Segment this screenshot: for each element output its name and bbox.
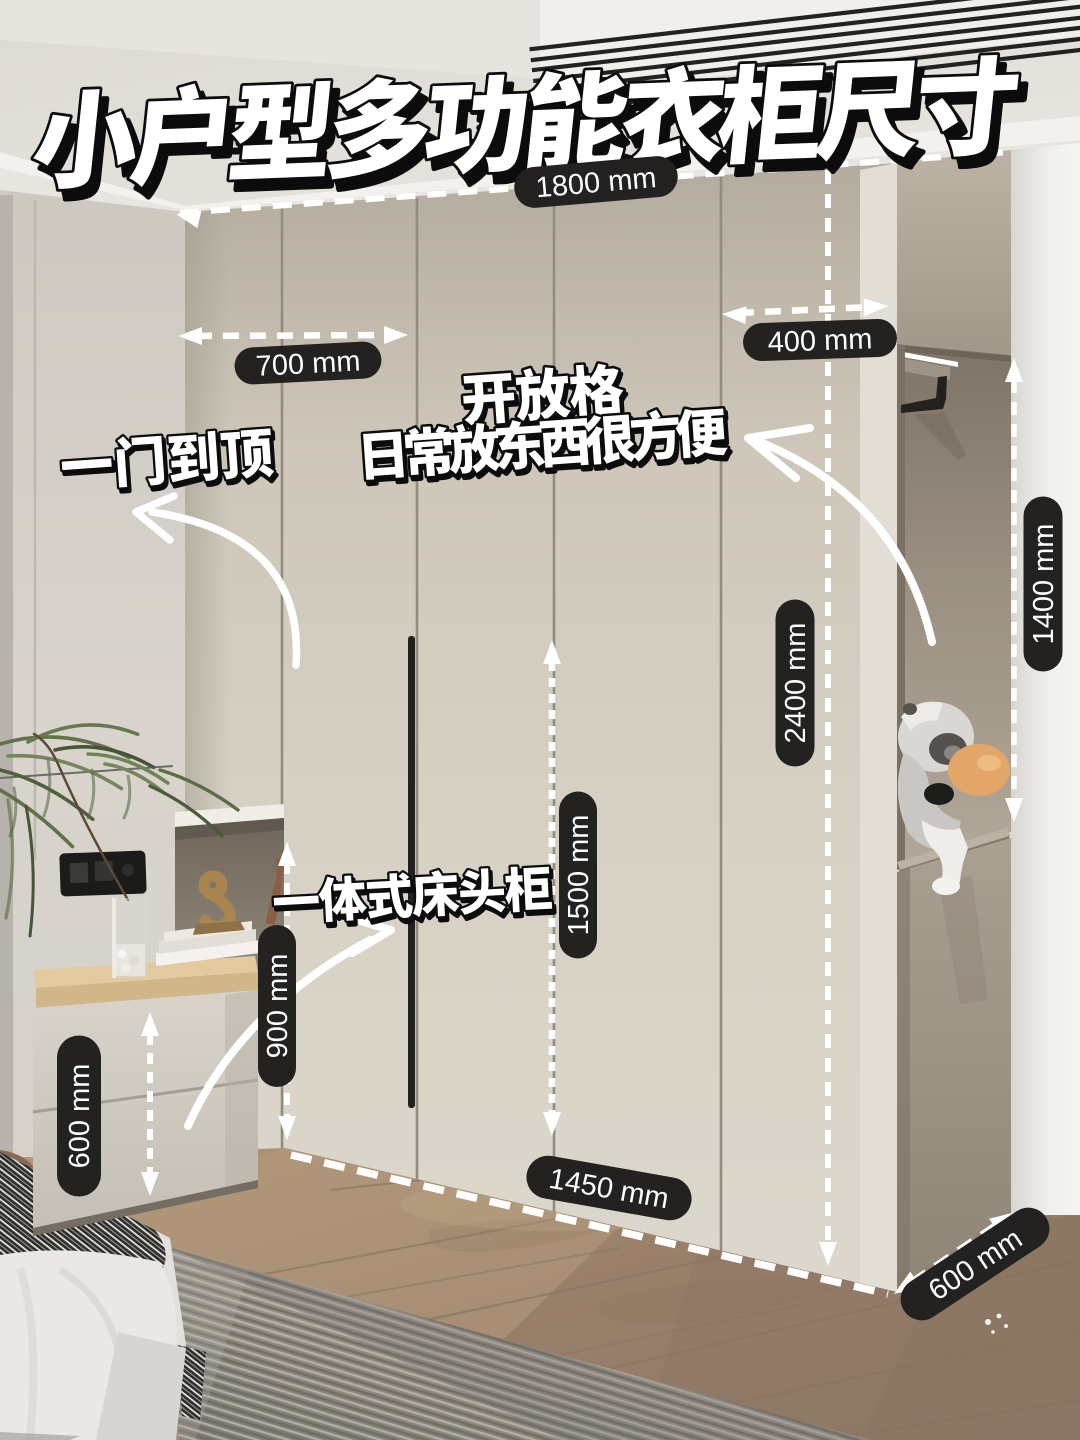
svg-text:2400 mm: 2400 mm xyxy=(780,623,812,744)
svg-text:400 mm: 400 mm xyxy=(767,323,873,359)
svg-text:600 mm: 600 mm xyxy=(64,1064,96,1169)
svg-text:1400 mm: 1400 mm xyxy=(1028,524,1060,645)
svg-text:900 mm: 900 mm xyxy=(262,954,294,1059)
svg-text:700 mm: 700 mm xyxy=(255,345,361,382)
svg-text:1500 mm: 1500 mm xyxy=(563,815,595,936)
